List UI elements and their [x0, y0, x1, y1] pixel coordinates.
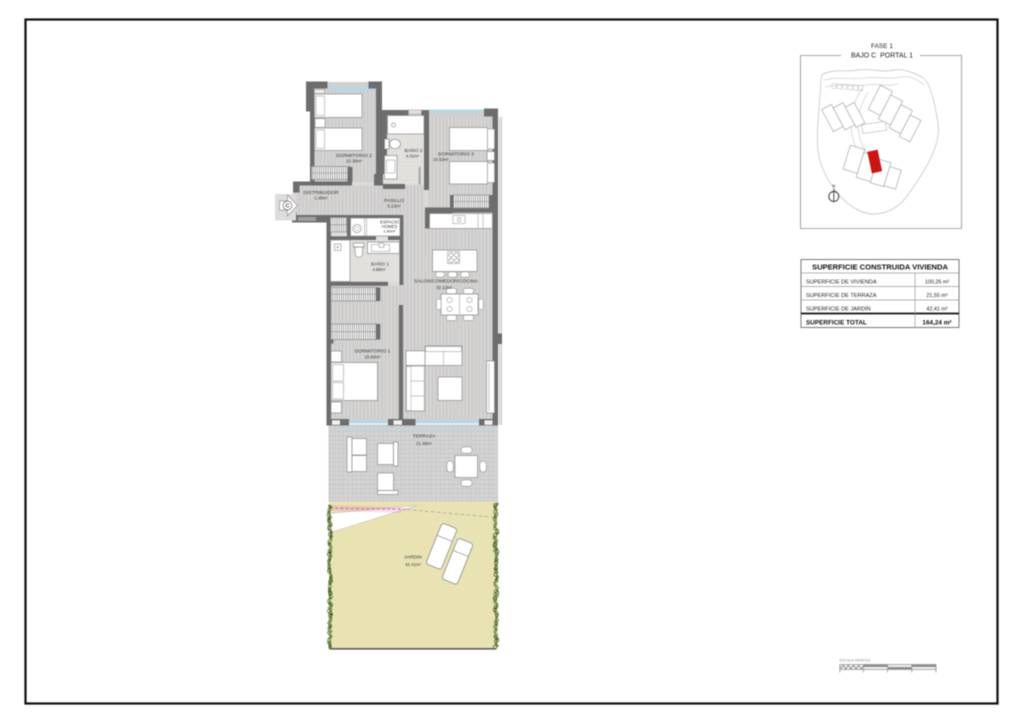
svg-text:SUPERFICIE DE JARDÍN: SUPERFICIE DE JARDÍN [806, 305, 871, 312]
svg-text:32.12m²: 32.12m² [436, 285, 452, 290]
svg-text:JARDIN: JARDIN [404, 555, 422, 561]
svg-text:SUPERFICIE DE VIVIENDA: SUPERFICIE DE VIVIENDA [806, 279, 877, 285]
svg-text:21,55 m²: 21,55 m² [926, 293, 947, 299]
svg-text:100,26 m²: 100,26 m² [925, 279, 949, 285]
svg-text:164,24 m²: 164,24 m² [922, 319, 951, 326]
svg-text:1.48m²: 1.48m² [314, 195, 328, 200]
svg-text:42.41m²: 42.41m² [405, 562, 421, 567]
svg-text:ESCALA GRAFICA: ESCALA GRAFICA [840, 659, 872, 663]
svg-text:SUPERFICIE TOTAL: SUPERFICIE TOTAL [806, 319, 867, 326]
svg-text:21.48m²: 21.48m² [416, 441, 432, 446]
svg-text:BAJO C PORTAL 1: BAJO C PORTAL 1 [851, 52, 913, 59]
svg-text:SUPERFICIE CONSTRUIDA VIVIENDA: SUPERFICIE CONSTRUIDA VIVIENDA [812, 263, 949, 272]
svg-text:4.31m²: 4.31m² [406, 154, 420, 159]
svg-text:C: C [285, 204, 289, 210]
svg-text:1.80m²: 1.80m² [383, 229, 396, 234]
svg-text:15.60m²: 15.60m² [365, 355, 381, 360]
svg-text:SUPERFICIE DE TERRAZA: SUPERFICIE DE TERRAZA [806, 293, 877, 299]
svg-text:N: N [832, 184, 835, 189]
svg-text:42,41 m²: 42,41 m² [926, 306, 947, 312]
svg-text:10.53m²: 10.53m² [433, 157, 449, 162]
svg-text:5.13m²: 5.13m² [387, 204, 401, 209]
svg-text:10.39m²: 10.39m² [346, 159, 362, 164]
svg-text:SALON/COMEDOR/COCINA: SALON/COMEDOR/COCINA [414, 279, 479, 285]
svg-text:TERRAZA: TERRAZA [413, 434, 437, 440]
svg-text:FASE 1: FASE 1 [871, 43, 893, 50]
svg-text:4.88m²: 4.88m² [372, 267, 386, 272]
